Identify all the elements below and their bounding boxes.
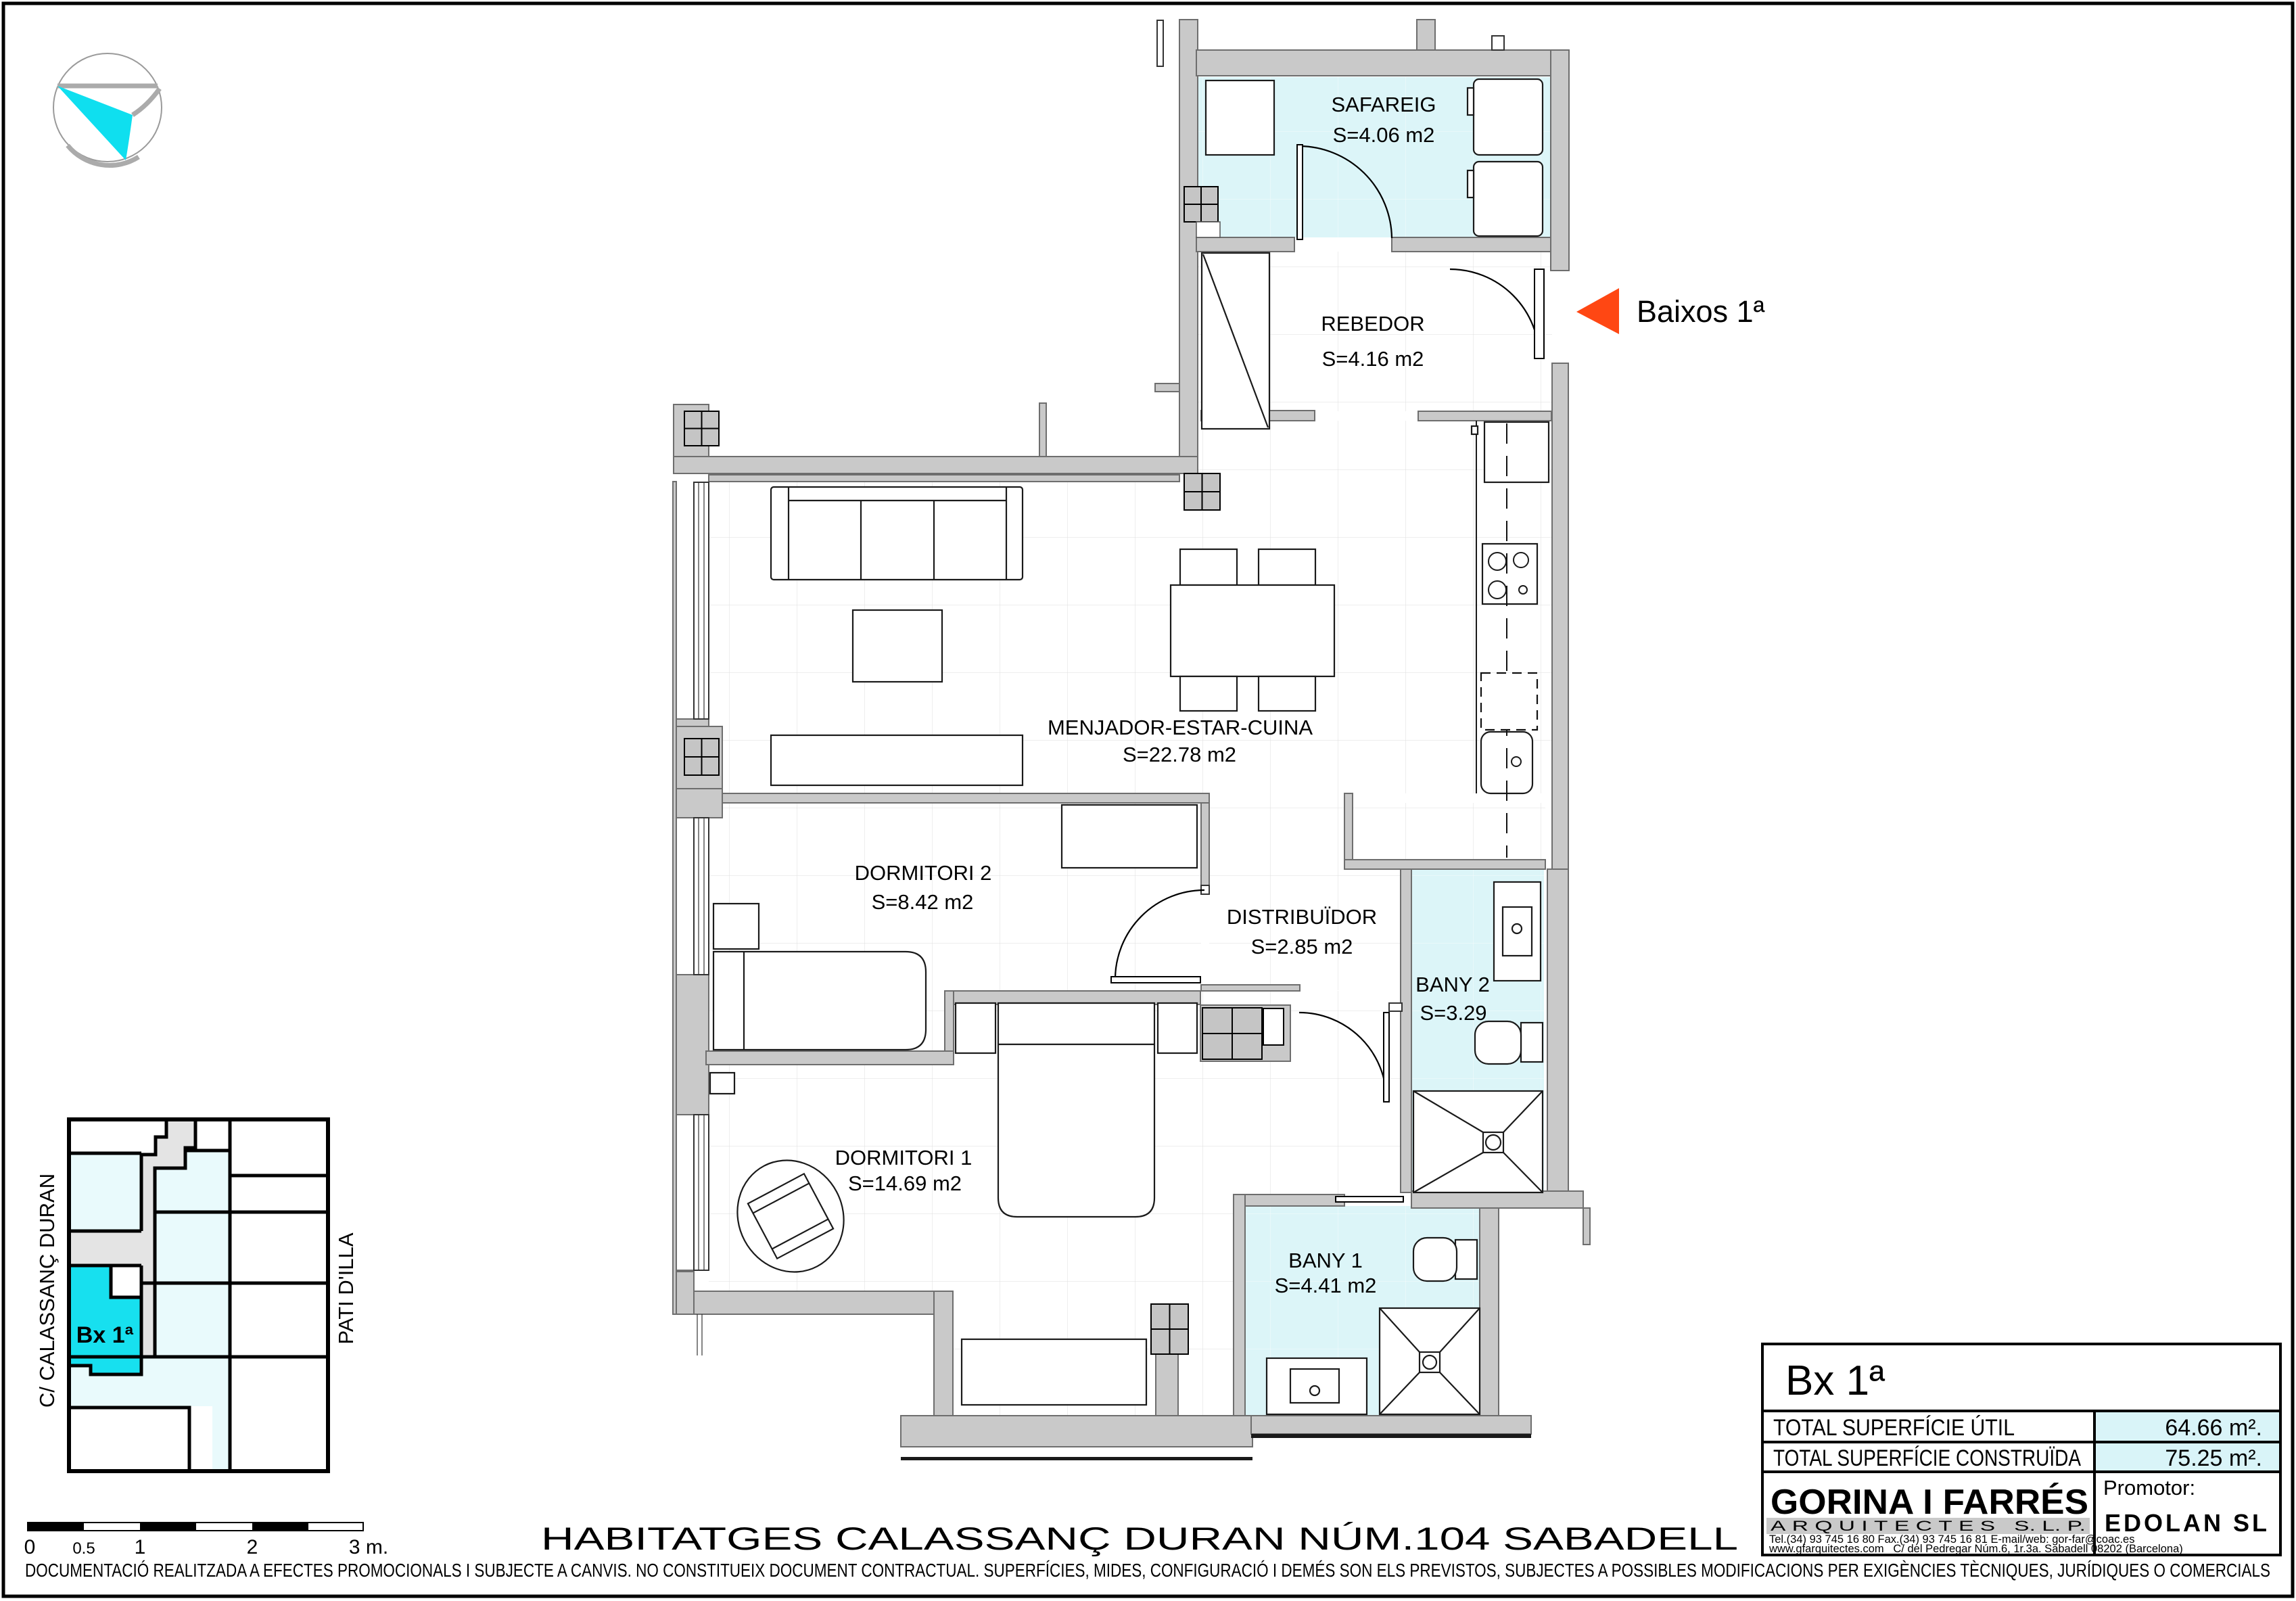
svg-text:S=2.85 m2: S=2.85 m2 <box>1251 935 1353 958</box>
svg-text:A R Q U I T E C T E S S. L.: A R Q U I T E C T E S S. L. P. <box>1771 1518 2086 1534</box>
svg-text:DORMITORI 1: DORMITORI 1 <box>835 1146 973 1169</box>
svg-text:0: 0 <box>24 1536 36 1558</box>
svg-text:REBEDOR: REBEDOR <box>1321 312 1424 335</box>
svg-text:S=8.42 m2: S=8.42 m2 <box>872 890 974 914</box>
svg-text:0.5: 0.5 <box>72 1539 95 1558</box>
svg-text:PATI D'ILLA: PATI D'ILLA <box>334 1232 358 1344</box>
svg-text:DISTRIBUÏDOR: DISTRIBUÏDOR <box>1227 905 1377 929</box>
svg-text:HABITATGES CALASSANÇ DURAN NÚM: HABITATGES CALASSANÇ DURAN NÚM.104 SABAD… <box>541 1521 1738 1556</box>
svg-text:www.gfarquitectes.com C/ del: www.gfarquitectes.com C/ del Pedregar Nú… <box>1768 1543 2183 1555</box>
svg-text:64.66 m².: 64.66 m². <box>2165 1415 2262 1441</box>
svg-text:DOCUMENTACIÓ REALITZADA A EFEC: DOCUMENTACIÓ REALITZADA A EFECTES PROMOC… <box>25 1560 2270 1581</box>
svg-text:3 m.: 3 m. <box>349 1536 388 1558</box>
svg-text:S=4.41 m2: S=4.41 m2 <box>1275 1274 1377 1297</box>
svg-text:2: 2 <box>247 1536 258 1558</box>
svg-text:C/ CALASSANÇ DURAN: C/ CALASSANÇ DURAN <box>35 1174 59 1408</box>
svg-text:Promotor:: Promotor: <box>2103 1476 2195 1500</box>
svg-text:TOTAL SUPERFÍCIE ÚTIL: TOTAL SUPERFÍCIE ÚTIL <box>1773 1415 2015 1441</box>
svg-text:BANY 1: BANY 1 <box>1288 1249 1363 1272</box>
svg-text:EDOLAN SL: EDOLAN SL <box>2105 1509 2270 1537</box>
svg-text:MENJADOR-ESTAR-CUINA: MENJADOR-ESTAR-CUINA <box>1048 716 1313 739</box>
svg-text:Bx 1ª: Bx 1ª <box>76 1322 134 1348</box>
svg-text:S=4.06 m2: S=4.06 m2 <box>1333 123 1435 147</box>
svg-text:S=4.16 m2: S=4.16 m2 <box>1322 347 1424 371</box>
svg-text:75.25 m².: 75.25 m². <box>2165 1445 2262 1471</box>
svg-text:Baixos 1ª: Baixos 1ª <box>1637 294 1765 329</box>
svg-text:Bx 1ª: Bx 1ª <box>1785 1358 1885 1404</box>
svg-text:TOTAL SUPERFÍCIE CONSTRUÏDA: TOTAL SUPERFÍCIE CONSTRUÏDA <box>1773 1445 2081 1471</box>
svg-text:1: 1 <box>135 1536 146 1558</box>
svg-text:DORMITORI 2: DORMITORI 2 <box>855 861 992 885</box>
svg-text:GORINA I FARRÉS: GORINA I FARRÉS <box>1771 1483 2088 1522</box>
svg-text:S=14.69 m2: S=14.69 m2 <box>848 1171 962 1195</box>
svg-text:S=22.78 m2: S=22.78 m2 <box>1123 743 1236 766</box>
svg-text:BANY 2: BANY 2 <box>1415 973 1490 996</box>
svg-text:SAFAREIG: SAFAREIG <box>1331 93 1436 116</box>
svg-text:S=3.29: S=3.29 <box>1420 1001 1486 1025</box>
